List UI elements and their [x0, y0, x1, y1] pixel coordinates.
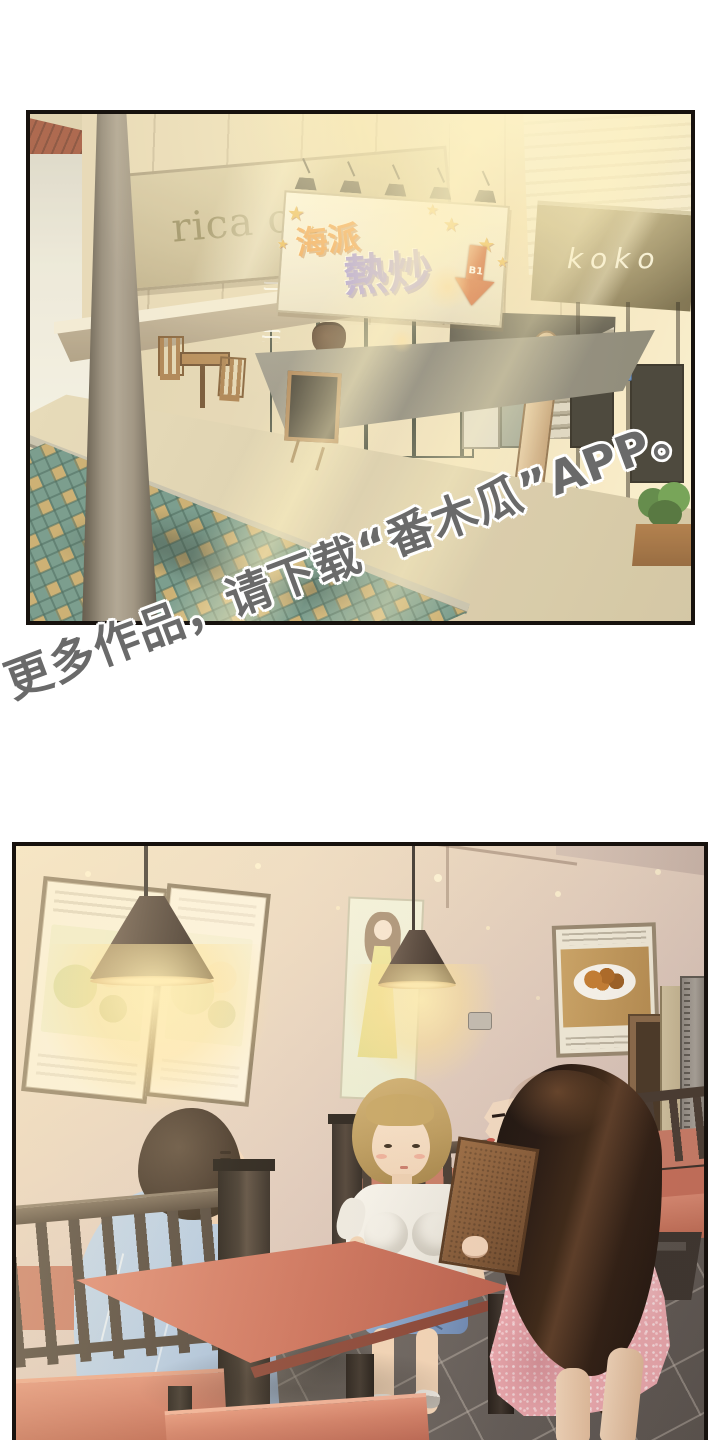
poster-text-lines — [562, 931, 646, 946]
dark-haired-woman-hand — [462, 1236, 488, 1258]
outdoor-chair — [158, 336, 182, 402]
sign-lamp-icon — [340, 172, 363, 193]
hair-sheen — [508, 1070, 618, 1142]
sign-lamp-icon — [429, 178, 452, 199]
fried-chicken — [581, 965, 628, 993]
hotpot-sign-word2: 熱炒 — [341, 235, 433, 305]
pendant-lamp-rod — [412, 846, 415, 934]
dark-haired-woman-leg — [556, 1368, 590, 1440]
star-icon: ★ — [276, 238, 289, 252]
sign-lamp-icon — [474, 182, 497, 203]
blonde-woman-blush — [376, 1154, 387, 1159]
outdoor-chair — [216, 356, 245, 424]
star-icon: ★ — [425, 202, 439, 218]
sparkle-lights — [16, 846, 20, 850]
pendant-lamp-rod — [144, 846, 148, 902]
pendant-lamp-bulb — [90, 976, 214, 986]
blonde-woman-mouth — [400, 1166, 408, 1169]
sign-lamp-icon — [384, 175, 407, 196]
lens-flare — [425, 264, 471, 310]
koko-signboard: koko — [531, 201, 695, 312]
hotpot-signboard: ★ ★ ★ ★ ★ ★ ★ 海派 熱炒 B1 — [276, 190, 510, 327]
chalkboard-easel — [284, 371, 342, 444]
blonde-woman-eyes — [384, 1144, 392, 1148]
street-scene-panel: rica coffee ★ ★ ★ ★ ★ ★ ★ 海派 熱炒 — [26, 110, 695, 625]
comic-page: rica coffee ★ ★ ★ ★ ★ ★ ★ 海派 熱炒 — [0, 0, 720, 1440]
restaurant-scene-panel — [12, 842, 708, 1440]
light-wash — [342, 899, 423, 1100]
planter-box — [632, 524, 695, 566]
sign-lamp-icon — [295, 169, 318, 190]
koko-sign-text: koko — [567, 241, 662, 274]
pendant-lamp-bulb — [378, 981, 456, 989]
blonde-woman-fringe — [366, 1094, 434, 1126]
light-switch — [468, 1012, 492, 1030]
plant-foliage — [648, 500, 682, 528]
star-icon: ★ — [442, 215, 460, 235]
lens-flare — [390, 329, 414, 353]
koko-window — [630, 364, 684, 483]
street-planter — [632, 486, 695, 566]
ceiling-beam — [446, 846, 449, 908]
